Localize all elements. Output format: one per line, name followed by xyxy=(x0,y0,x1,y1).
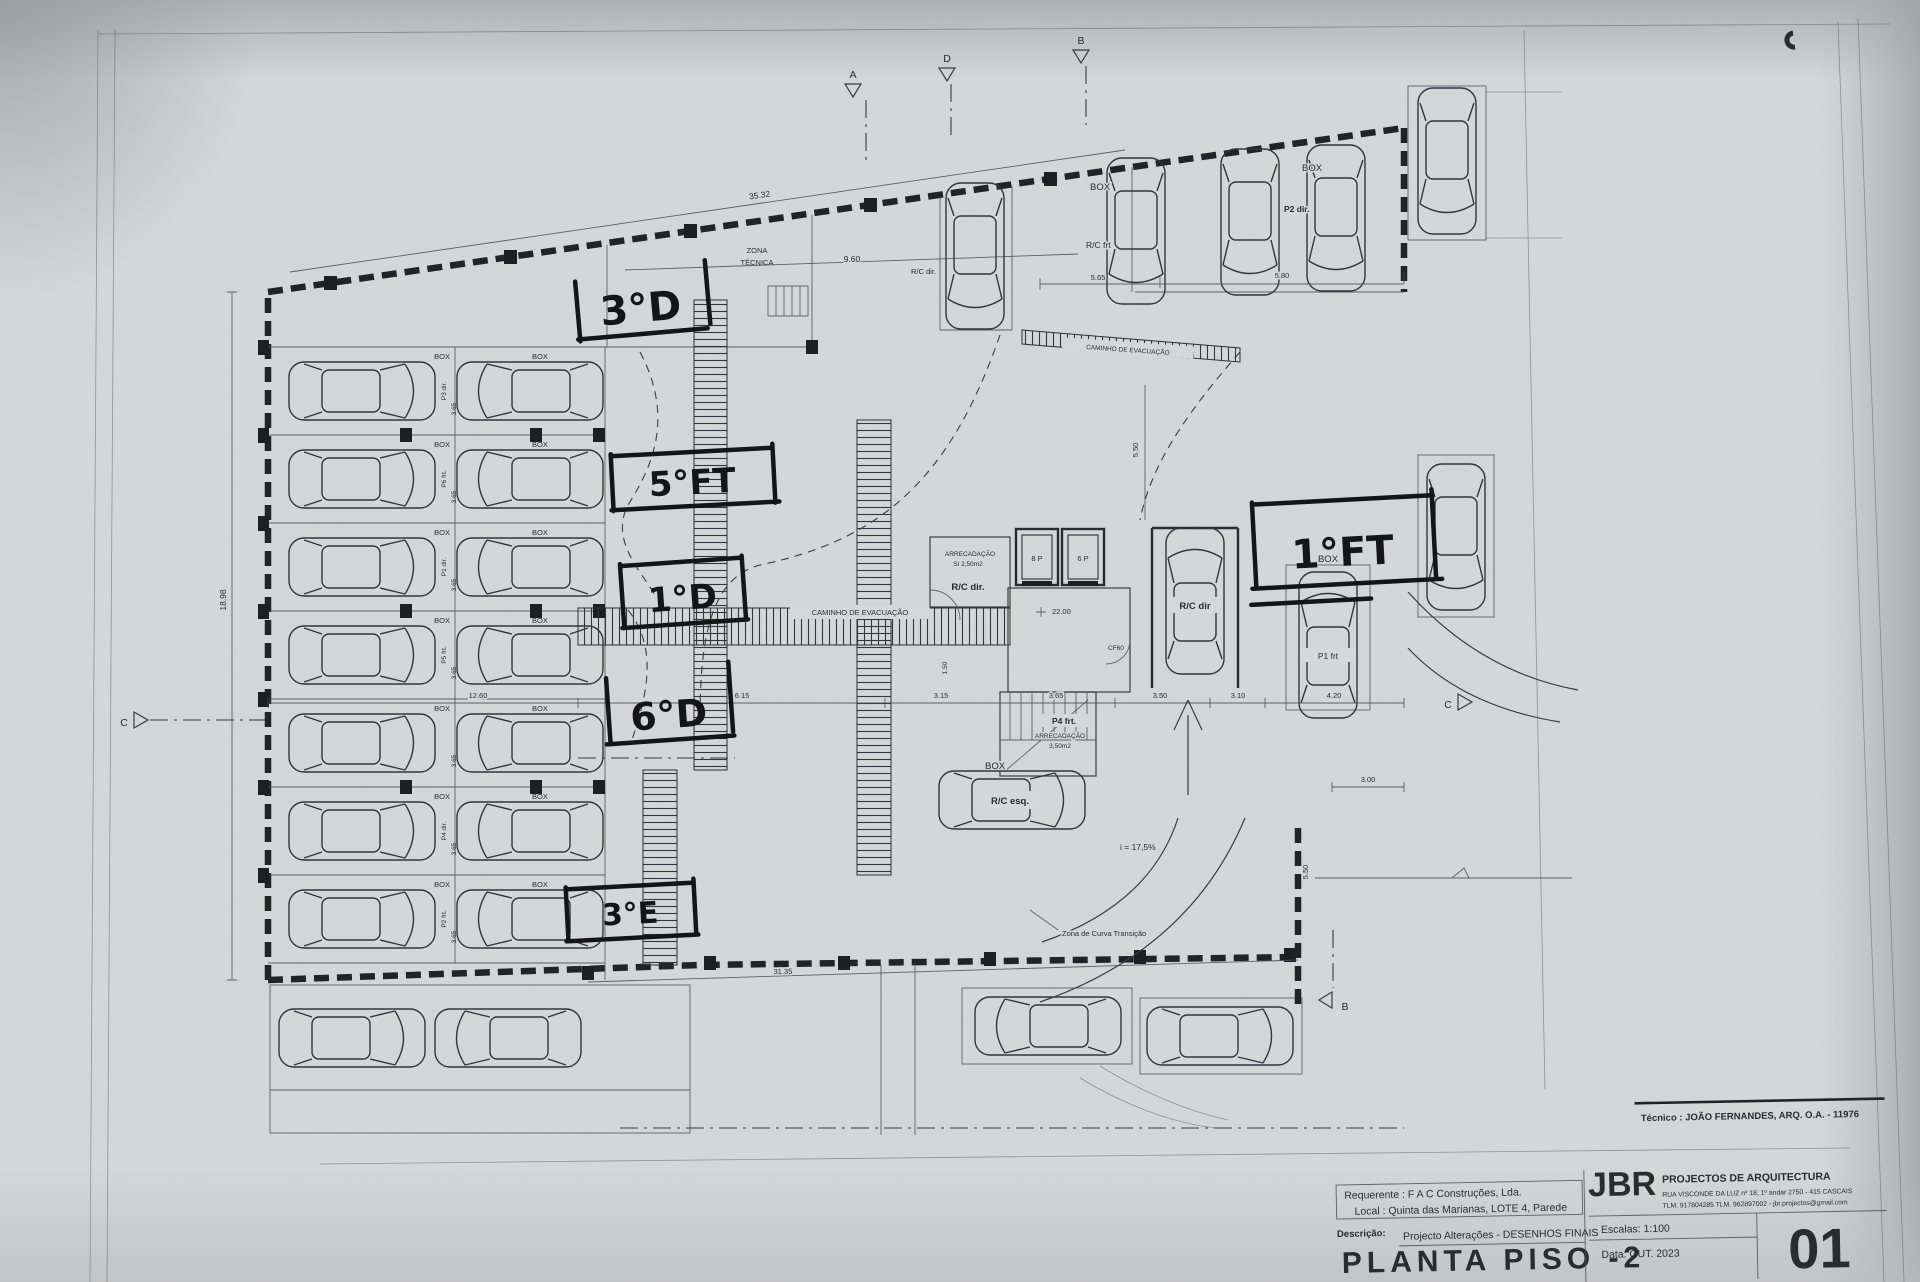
curva-transicao-label: Zona de Curva Transição xyxy=(1062,929,1146,938)
spot-dim: 3.65 xyxy=(451,842,458,855)
spot-label: P3 dir. xyxy=(441,382,448,401)
svg-text:3°E: 3°E xyxy=(601,896,659,934)
spot-label: P2 frt. xyxy=(441,910,448,928)
dim-4-20: 4.20 xyxy=(1327,691,1342,700)
section-marker-a: A xyxy=(849,69,856,81)
dim-3-65: 3.65 xyxy=(1049,691,1064,700)
rc-dir-top-label: R/C dir. xyxy=(911,267,936,276)
dim-1-50: 1.50 xyxy=(942,661,949,674)
box-label: BOX xyxy=(434,440,450,449)
dim-5-65: 5.65 xyxy=(1091,273,1106,282)
box-label: BOX xyxy=(532,352,548,361)
box-label: BOX xyxy=(434,616,450,625)
zona-tecnica-label-2: TÉCNICA xyxy=(741,258,774,267)
dim-5-50-bottom: 5.50 xyxy=(1301,865,1310,880)
section-marker-d: D xyxy=(943,53,951,65)
box-top-right-label: BOX xyxy=(1302,163,1323,174)
firm-initials: JBR xyxy=(1588,1165,1657,1204)
svg-text:6°D: 6°D xyxy=(629,690,709,739)
dim-31-35: 31.35 xyxy=(773,967,792,976)
spot-dim: 3.65 xyxy=(451,490,458,503)
spot-dim: 3.65 xyxy=(451,402,458,415)
box-label: BOX xyxy=(434,528,450,537)
box-label: BOX xyxy=(434,704,450,713)
drawing-title: PLANTA PISO -2 xyxy=(1342,1241,1646,1280)
spot-label: P6 frt. xyxy=(441,470,448,488)
storage-unit-label: R/C dir. xyxy=(951,582,984,593)
dim-3-10: 3.10 xyxy=(1231,691,1246,700)
level-22-00: 22.00 xyxy=(1052,607,1071,616)
dim-9-60: 9.60 xyxy=(844,254,861,264)
p1-frt-label: P1 frt xyxy=(1318,651,1339,661)
dim-3-50: 3.50 xyxy=(1153,691,1168,700)
descricao-label: Descrição: xyxy=(1337,1228,1386,1240)
svg-text:5°FT: 5°FT xyxy=(648,461,738,506)
storage2-area: 3,50m2 xyxy=(1049,743,1071,750)
box-label: BOX xyxy=(434,880,450,889)
rc-dir-box-label: R/C dir xyxy=(1179,601,1210,612)
storage-label-1: ARRECADAÇÃO xyxy=(945,549,995,558)
scanned-floor-plan-photo: 35.32 ZONA TÉCNICA 9.60 BOX BOX P3 dir. … xyxy=(0,0,1920,1282)
elevator-1-label: 8 P xyxy=(1031,554,1042,563)
cf60-label: CF60 xyxy=(1108,645,1124,652)
section-marker-b: B xyxy=(1077,35,1084,47)
section-marker-c-right: C xyxy=(1444,699,1452,711)
rc-frt-label: R/C frt xyxy=(1086,240,1111,250)
section-marker-b-bottom: B xyxy=(1341,1001,1348,1013)
section-marker-c-left: C xyxy=(120,717,128,729)
box-label: BOX xyxy=(532,880,548,889)
dim-6-15: 6.15 xyxy=(735,691,750,700)
spot-dim: 3.65 xyxy=(451,754,458,767)
zona-tecnica-label-1: ZONA xyxy=(747,246,768,255)
caminho-evacuacao-label: CAMINHO DE EVACUAÇÃO xyxy=(812,608,909,617)
stairs-spot-label: P4 frt. xyxy=(1052,716,1076,726)
spot-label: P1 dir. xyxy=(441,558,448,577)
storage-label-2: SI 2,50m2 xyxy=(953,561,983,568)
sheet-number: 01 xyxy=(1788,1216,1851,1280)
floor-plan-drawing: 35.32 ZONA TÉCNICA 9.60 BOX BOX P3 dir. … xyxy=(0,0,1920,1282)
dim-3-00: 3.00 xyxy=(1361,775,1376,784)
rc-esq-label: R/C esq. xyxy=(991,796,1029,807)
box-top-left-label: BOX xyxy=(1090,182,1111,193)
storage2-label: ARRECADAÇÃO xyxy=(1035,731,1085,740)
dim-5-80: 5.80 xyxy=(1275,271,1290,280)
spot-label: P5 frt. xyxy=(441,646,448,664)
svg-text:1°D: 1°D xyxy=(647,576,719,621)
svg-text:1°FT: 1°FT xyxy=(1290,527,1395,578)
spot-dim: 3.65 xyxy=(451,930,458,943)
spot-dim: 3.65 xyxy=(451,578,458,591)
box-label: BOX xyxy=(434,792,450,801)
spot-label: P4 dir. xyxy=(441,822,448,841)
elevator-2-label: 6 P xyxy=(1077,554,1088,563)
dim-18-98: 18.98 xyxy=(218,589,228,611)
dim-5-50-top: 5.50 xyxy=(1131,443,1140,458)
dim-12-60: 12.60 xyxy=(469,691,488,700)
svg-text:3°D: 3°D xyxy=(598,283,683,336)
dim-3-15: 3.15 xyxy=(934,691,949,700)
escalas-line: Escalas: 1:100 xyxy=(1601,1223,1670,1236)
box-label: BOX xyxy=(434,352,450,361)
slope-label: i = 17,5% xyxy=(1120,842,1156,852)
data-line: Data: OUT. 2023 xyxy=(1601,1247,1680,1261)
box-label: BOX xyxy=(532,704,548,713)
p2-dir-label: P2 dir. xyxy=(1284,204,1310,214)
spot-dim: 3.65 xyxy=(451,666,458,679)
box-label: BOX xyxy=(532,528,548,537)
